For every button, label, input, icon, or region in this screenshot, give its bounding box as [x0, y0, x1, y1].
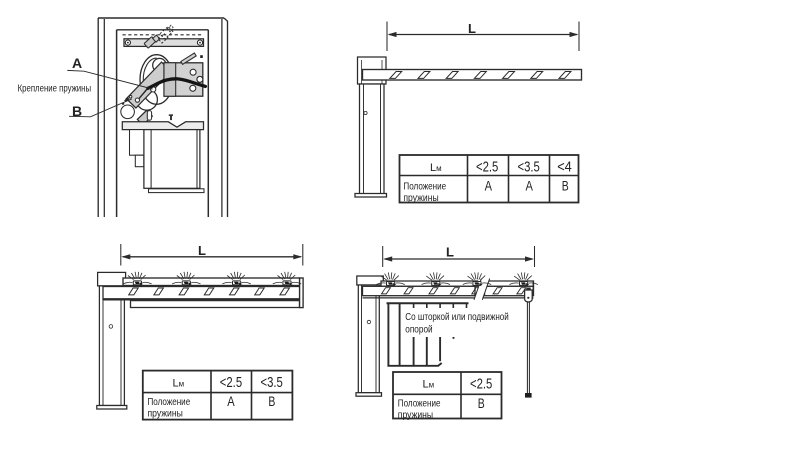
svg-text:A: A — [526, 179, 533, 194]
svg-text:<3.5: <3.5 — [518, 159, 540, 175]
svg-text:<2.5: <2.5 — [220, 375, 242, 391]
svg-text:L: L — [468, 21, 476, 36]
svg-text:A: A — [72, 55, 82, 71]
svg-text:<4: <4 — [557, 159, 572, 175]
svg-text:Lм: Lм — [173, 378, 185, 390]
svg-text:<2.5: <2.5 — [470, 376, 492, 392]
svg-text:Lм: Lм — [430, 162, 442, 174]
svg-text:Крепление пружины: Крепление пружины — [18, 82, 92, 94]
svg-text:L: L — [446, 244, 454, 259]
svg-text:L: L — [198, 243, 206, 258]
svg-text:<3.5: <3.5 — [261, 375, 283, 391]
svg-text:A: A — [227, 394, 234, 409]
svg-text:B: B — [478, 396, 485, 411]
svg-text:B: B — [268, 394, 275, 409]
svg-text:Со шторкой или подвижной: Со шторкой или подвижной — [405, 311, 509, 323]
svg-text:Положение: Положение — [398, 399, 441, 410]
svg-text:пружины: пружины — [398, 410, 433, 421]
svg-text:B: B — [562, 179, 569, 194]
svg-text:Положение: Положение — [148, 397, 191, 408]
svg-text:A: A — [485, 179, 492, 194]
svg-text:пружины: пружины — [403, 193, 438, 204]
svg-text:Lм: Lм — [423, 379, 435, 391]
svg-text:<2.5: <2.5 — [476, 159, 498, 175]
svg-text:пружины: пружины — [148, 409, 183, 420]
svg-text:опорой: опорой — [405, 323, 432, 335]
svg-text:Положение: Положение — [403, 181, 446, 192]
